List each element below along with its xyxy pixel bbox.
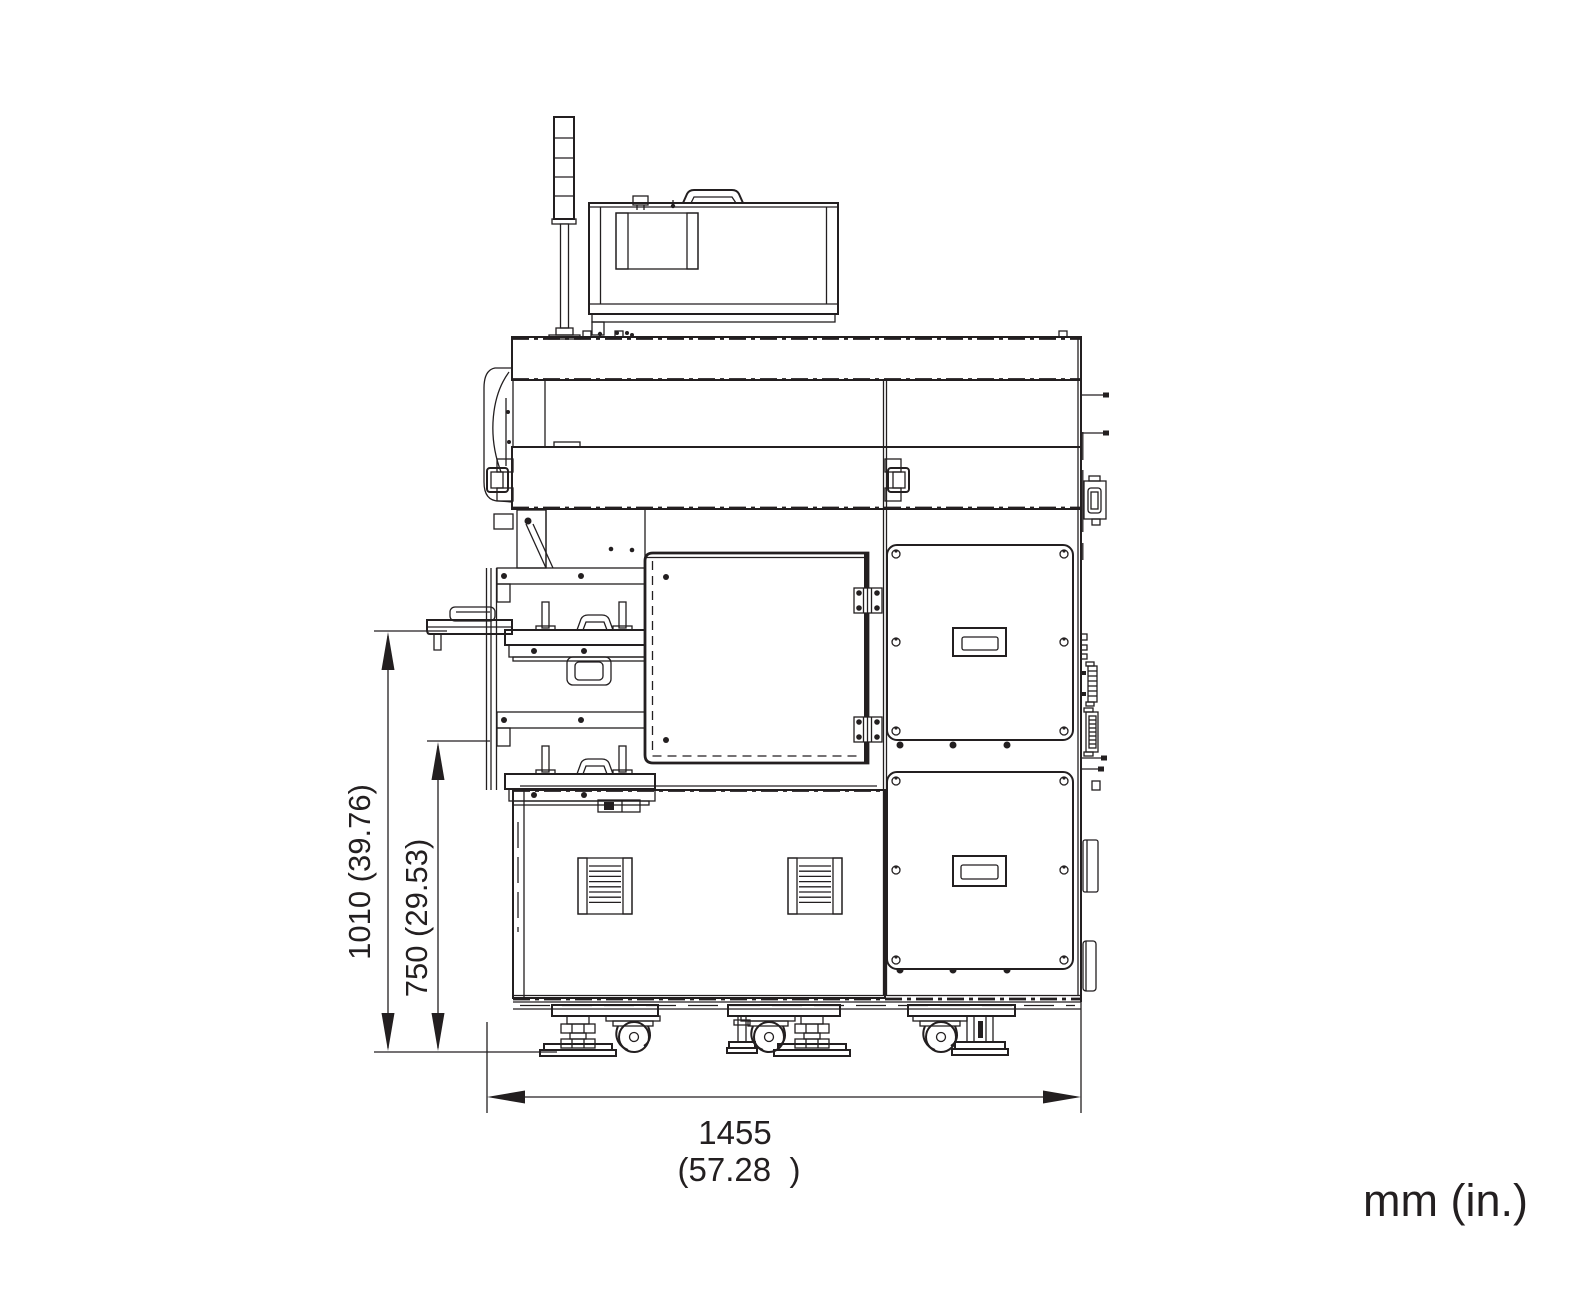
right-edge xyxy=(1078,337,1081,1002)
carry-handle xyxy=(683,190,743,203)
tray-station-upper xyxy=(497,568,655,661)
lower-connector-block xyxy=(598,800,640,812)
service-door xyxy=(645,553,882,763)
door-hinge-bottom xyxy=(854,717,882,742)
console-foot-block xyxy=(592,322,604,335)
side-latch xyxy=(1084,476,1106,525)
caster-wheel xyxy=(913,1016,967,1052)
vent-right xyxy=(788,858,842,914)
control-console xyxy=(589,190,838,335)
terminal-strip-small xyxy=(1081,662,1097,706)
dim-height-overall: 1010 (39.76) xyxy=(342,631,557,1052)
side-pin xyxy=(1081,767,1104,772)
caster-wheel xyxy=(741,1016,795,1052)
side-pin xyxy=(1081,393,1109,398)
foot-bracket-right xyxy=(908,1005,1015,1016)
caster-wheel xyxy=(606,1016,660,1052)
left-strut-panel xyxy=(494,510,645,568)
access-panel-upper xyxy=(887,545,1073,740)
door-hinge-top xyxy=(854,588,882,613)
tray-rails xyxy=(487,568,497,790)
mid-cover-band xyxy=(512,442,1081,509)
terminal-strip-large xyxy=(1084,708,1098,756)
vent-left xyxy=(578,858,632,914)
tower-base xyxy=(556,328,573,335)
access-panel-lower xyxy=(887,772,1073,969)
base-frame xyxy=(513,996,1081,1017)
upper-left-panel xyxy=(513,380,545,447)
top-cover-band xyxy=(512,331,1081,380)
console-base xyxy=(592,314,835,322)
foot-bracket-center xyxy=(728,1005,840,1016)
signal-tower xyxy=(549,117,580,339)
drawing-canvas: 1010 (39.76) 750 (29.53) 1455 (57.28 ) m… xyxy=(0,0,1576,1301)
machine-outline xyxy=(427,331,1109,1002)
right-side-fittings xyxy=(1081,393,1109,992)
dim-height-overall-label: 1010 (39.76) xyxy=(342,784,377,960)
dim-height-upper-label: 750 (29.53) xyxy=(399,839,434,998)
side-pin xyxy=(1081,431,1109,436)
side-bracket-upper xyxy=(1083,840,1098,892)
dim-width-mm-label: 1455 xyxy=(698,1114,771,1151)
dim-width-inches-label: (57.28 ) xyxy=(678,1151,801,1188)
foot-bracket-left xyxy=(552,1005,658,1016)
dim-height-upper: 750 (29.53) xyxy=(399,741,490,1051)
leveling-foot xyxy=(540,1016,616,1056)
side-shelf xyxy=(427,607,512,650)
tower-pole xyxy=(561,224,569,328)
left-door-latch xyxy=(487,459,513,501)
machine-front-elevation-drawing: 1010 (39.76) 750 (29.53) 1455 (57.28 ) m… xyxy=(0,0,1576,1301)
side-bracket-lower xyxy=(1083,941,1096,991)
units-label: mm (in.) xyxy=(1363,1175,1528,1226)
